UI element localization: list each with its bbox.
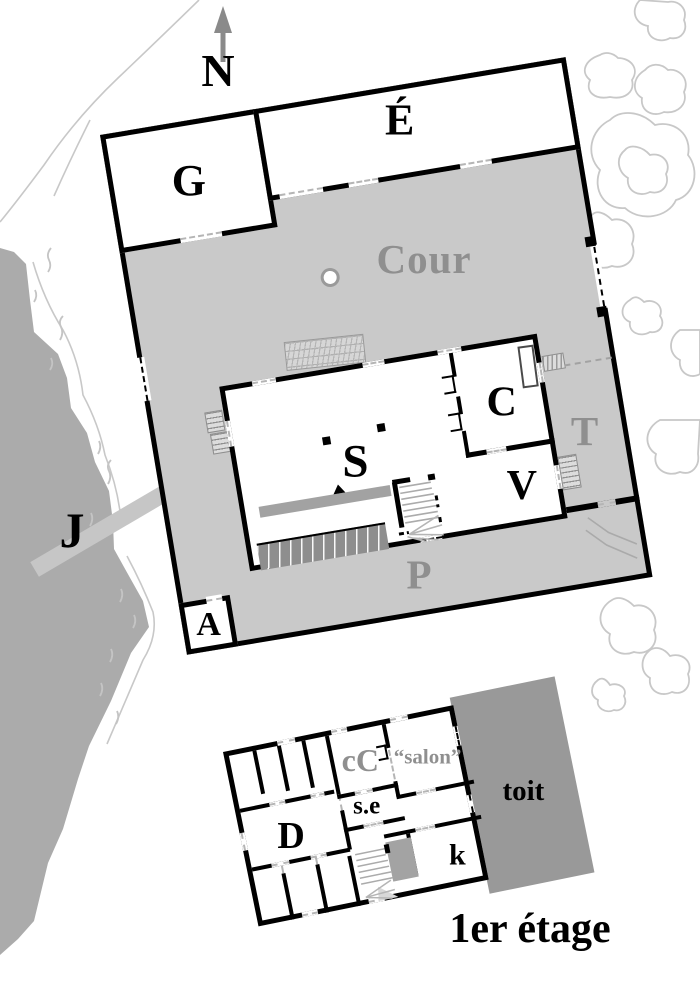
room-se-label: s.e <box>342 793 392 818</box>
interior-wall <box>449 353 457 377</box>
room-s-label: S <box>325 438 385 485</box>
pillar <box>322 436 331 445</box>
room-v-label: V <box>492 465 552 507</box>
main-enclosure-plan: G É Cour T P A <box>100 57 653 655</box>
exterior-steps <box>204 410 225 434</box>
partition-wall <box>301 740 314 788</box>
room-salon-label: “salon” <box>385 746 470 767</box>
pillar <box>377 423 386 432</box>
first-floor-caption: 1er étage <box>430 908 630 950</box>
room-d-label: D <box>266 817 316 855</box>
room-e-label: É <box>370 98 430 142</box>
roof-label: toit <box>470 777 577 806</box>
door-dash <box>281 865 285 873</box>
water-area <box>0 248 149 955</box>
room-k-label: k <box>437 840 477 870</box>
room-cc-label: cC <box>335 744 385 776</box>
room-g-label: G <box>172 159 206 203</box>
gate-post <box>585 236 597 248</box>
courtyard-label: Cour <box>354 239 494 280</box>
terrace-label: T <box>555 411 615 452</box>
gate-post <box>596 306 608 318</box>
compass-north-label: N <box>193 48 243 94</box>
site-plan-page: { "compass": { "label": "N" }, "main_pla… <box>0 0 700 993</box>
interior-wall <box>466 438 556 458</box>
jetty-label: J <box>42 505 102 555</box>
path-contours <box>578 499 649 570</box>
partition-wall <box>277 745 290 791</box>
partition-wall <box>252 750 265 794</box>
door-swing <box>442 375 457 395</box>
partition-wall <box>281 873 294 920</box>
garden-label: P <box>389 554 449 595</box>
partition-wall <box>315 864 329 913</box>
low-wall <box>259 485 392 518</box>
main-staircase <box>387 469 448 548</box>
room-a-label: A <box>196 608 221 642</box>
shore-contour <box>54 120 90 196</box>
door-swing <box>448 412 463 432</box>
